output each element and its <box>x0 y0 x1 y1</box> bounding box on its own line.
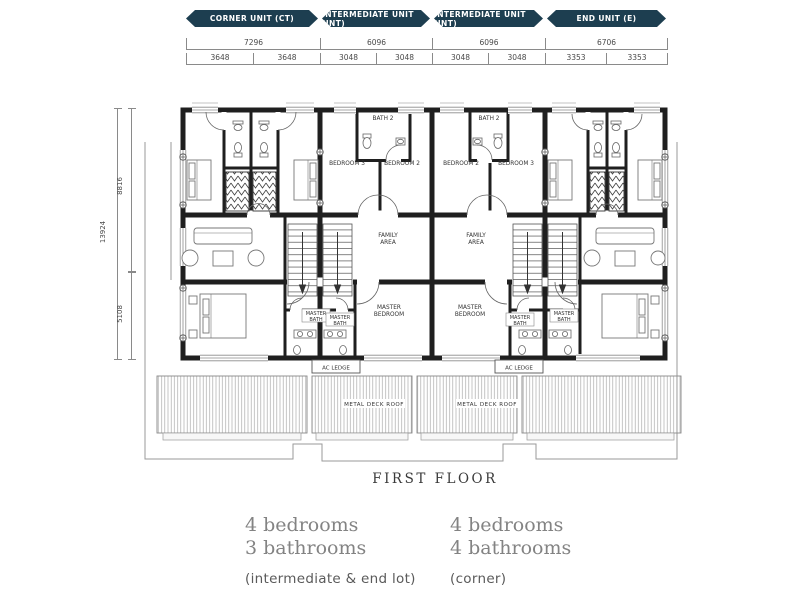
label-master-bath-unit2-l2: BATH <box>333 321 347 327</box>
label-bedroom2-unit2: BEDROOM 2 <box>384 161 420 167</box>
label-bedroom3-unit3: BEDROOM 3 <box>498 161 534 167</box>
summary-bedrooms-right: 4 bedrooms <box>450 514 571 537</box>
label-master-bath-unit4-l2: BATH <box>557 317 571 323</box>
summary-intermediate-end: 4 bedrooms 3 bathrooms (intermediate & e… <box>245 514 416 591</box>
label-bath2-unit2: BATH 2 <box>373 116 394 122</box>
label-family-area-unit2: FAMILY <box>378 233 398 239</box>
summary-note-right: (corner) <box>450 568 571 591</box>
label-family-area-unit2-l2: AREA <box>380 240 396 246</box>
floor-plan-drawing: METAL DECK ROOF METAL DECK ROOF <box>0 0 800 600</box>
label-master-bedroom-unit2-l2: BEDROOM <box>374 312 404 318</box>
label-master-bedroom-unit3-l2: BEDROOM <box>455 312 485 318</box>
bed <box>548 160 572 200</box>
floor-plan-page: { "colors": { "banner_teal": "#1d3e50", … <box>0 0 800 600</box>
bed <box>187 160 211 200</box>
summary-note-left: (intermediate & end lot) <box>245 568 416 591</box>
sofa-set <box>584 228 665 266</box>
label-master-bedroom-unit2: MASTER <box>377 305 401 311</box>
floor-caption: FIRST FLOOR <box>335 471 535 487</box>
summary-corner: 4 bedrooms 4 bathrooms (corner) <box>450 514 571 591</box>
master-bed <box>602 294 659 338</box>
label-bedroom3-unit2: BEDROOM 3 <box>329 161 365 167</box>
label-master-bath-unit3-l2: BATH <box>513 321 527 327</box>
label-bath2-unit3: BATH 2 <box>479 116 500 122</box>
metal-deck-roof: METAL DECK ROOF METAL DECK ROOF <box>157 376 681 440</box>
label-ac-ledge-left: AC LEDGE <box>322 366 350 372</box>
label-family-area-unit3-l2: AREA <box>468 240 484 246</box>
label-bedroom2-unit3: BEDROOM 2 <box>443 161 479 167</box>
bed <box>638 160 662 200</box>
label-master-bath-unit1-l2: BATH <box>309 317 323 323</box>
label-metal-deck-roof-right: METAL DECK ROOF <box>457 402 517 408</box>
bed <box>294 160 318 200</box>
label-family-area-unit3: FAMILY <box>466 233 486 239</box>
summary-bedrooms-left: 4 bedrooms <box>245 514 416 537</box>
summary-bathrooms-left: 3 bathrooms <box>245 537 416 560</box>
ac-ledges: AC LEDGE AC LEDGE <box>312 360 543 373</box>
label-ac-ledge-right: AC LEDGE <box>505 366 533 372</box>
sofa-sets <box>182 228 665 266</box>
label-metal-deck-roof-left: METAL DECK ROOF <box>344 402 404 408</box>
master-bed <box>189 294 246 338</box>
summary-bathrooms-right: 4 bathrooms <box>450 537 571 560</box>
sofa-set <box>182 228 264 266</box>
label-master-bedroom-unit3: MASTER <box>458 305 482 311</box>
